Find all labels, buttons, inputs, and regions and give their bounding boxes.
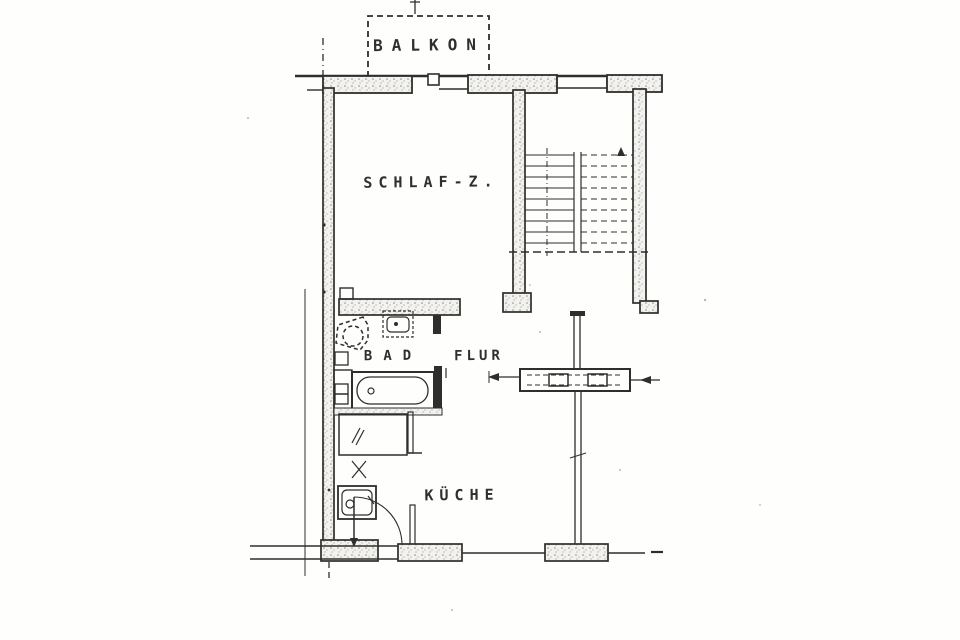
chimney-flue (488, 311, 660, 561)
toilet (336, 317, 368, 350)
kitchen-cabinet (339, 414, 407, 478)
wall-fixtures (335, 352, 348, 404)
room-label-balkon: BALKON (373, 35, 485, 55)
bathtub (334, 366, 446, 415)
room-label-flur: FLUR (454, 348, 504, 365)
floorplan-drawing (0, 0, 960, 640)
room-label-schlafzimmer: SCHLAF-Z. (363, 172, 498, 191)
kitchen-sink (338, 486, 376, 519)
stair-arrow-icon (617, 147, 625, 156)
staircase (509, 147, 648, 256)
room-label-kueche: KÜCHE (424, 486, 499, 505)
section-arrow-left-icon (488, 373, 499, 381)
room-label-bad: BAD (364, 348, 422, 365)
floorplan-page: BALKON SCHLAF-Z. BAD FLUR KÜCHE (0, 0, 960, 640)
top-exterior-wall (295, 74, 662, 93)
section-arrow-right-icon (640, 376, 651, 384)
